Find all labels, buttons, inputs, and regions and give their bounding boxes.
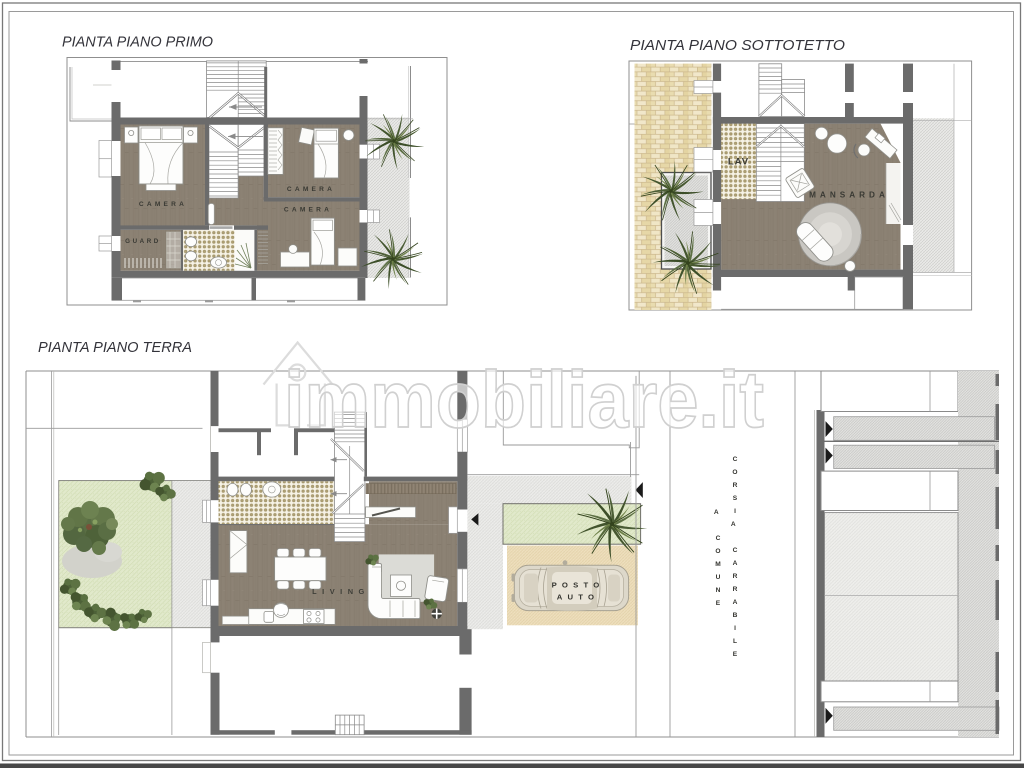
svg-text:LIVING: LIVING [312, 587, 370, 596]
svg-text:immobiliare.it: immobiliare.it [284, 355, 764, 444]
svg-text:PIANTA PIANO PRIMO: PIANTA PIANO PRIMO [62, 34, 213, 51]
svg-text:PIANTA PIANO SOTTOTETTO: PIANTA PIANO SOTTOTETTO [630, 37, 845, 54]
svg-text:CAMERA: CAMERA [287, 186, 335, 193]
svg-text:CAMERA: CAMERA [139, 201, 187, 208]
svg-text:AUTO: AUTO [557, 593, 599, 602]
svg-text:CAMERA: CAMERA [284, 207, 332, 214]
svg-text:PIANTA PIANO TERRA: PIANTA PIANO TERRA [38, 339, 192, 356]
svg-text:LAV: LAV [728, 157, 749, 168]
svg-text:POSTO: POSTO [552, 581, 605, 590]
svg-text:GUARD: GUARD [125, 238, 161, 245]
svg-text:MANSARDA: MANSARDA [809, 191, 889, 200]
